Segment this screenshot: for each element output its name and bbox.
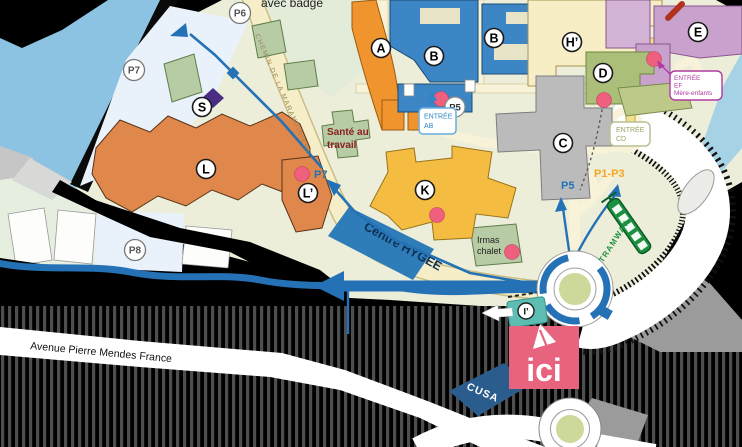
entrance-cd-line1: ENTRÉE bbox=[616, 125, 645, 134]
stairs-icon bbox=[465, 80, 475, 92]
poi-dot bbox=[430, 208, 445, 223]
route-p7-label: P7 bbox=[314, 169, 327, 181]
badge-h-prime: H’ bbox=[566, 36, 579, 50]
parking-p8: P8 bbox=[129, 246, 142, 257]
map-container: Centre HYGÉE Avenue Pierre Mendes France bbox=[0, 0, 742, 447]
badge-s: S bbox=[198, 101, 206, 115]
badge-d: D bbox=[598, 67, 607, 81]
parking-p6: P6 bbox=[234, 9, 247, 20]
badge-k: K bbox=[420, 184, 429, 198]
irmas-label-2: chalet bbox=[477, 246, 502, 256]
road-south-2 bbox=[598, 442, 655, 447]
entrance-ef-line1: ENTRÉE bbox=[674, 73, 701, 82]
courtyard bbox=[420, 8, 460, 24]
route-p1p3-label: P1-P3 bbox=[594, 168, 625, 180]
sante-label-1: Santé au bbox=[327, 127, 369, 138]
irmas-label-1: Irmas bbox=[477, 235, 500, 245]
white-building bbox=[54, 210, 96, 264]
badge-l: L bbox=[202, 163, 210, 177]
poi-dot bbox=[597, 93, 612, 108]
sante-label-2: travail bbox=[327, 140, 357, 151]
parking-p7: P7 bbox=[128, 66, 141, 77]
here-marker: ici bbox=[509, 324, 579, 389]
route-p5-label: P5 bbox=[561, 180, 574, 192]
entrance-ef-line3: Mère-enfants bbox=[674, 90, 713, 97]
badge-b2: B bbox=[489, 32, 498, 46]
entrance-cd: ENTRÉE CD bbox=[610, 122, 650, 146]
white-building bbox=[8, 208, 52, 266]
entrance-cd-line2: CD bbox=[616, 136, 626, 143]
stop-i-prime-label: I’ bbox=[523, 307, 528, 317]
campus-map-svg: Centre HYGÉE Avenue Pierre Mendes France bbox=[0, 0, 742, 447]
badge-c: C bbox=[558, 137, 567, 151]
building-e-west bbox=[606, 0, 650, 48]
poi-dot bbox=[505, 245, 520, 260]
badge-l-prime: L’ bbox=[303, 187, 313, 201]
badge-note: avec badge bbox=[261, 0, 323, 10]
badge-e: E bbox=[694, 26, 702, 40]
entrance-ab-line2: AB bbox=[424, 123, 434, 130]
stairs-icon bbox=[404, 84, 414, 96]
badge-b1: B bbox=[429, 50, 438, 64]
poi-dot bbox=[295, 167, 310, 182]
badge-a: A bbox=[376, 42, 385, 56]
entrance-ef-line2: EF bbox=[674, 83, 682, 90]
here-label: ici bbox=[526, 352, 562, 388]
entrance-ab-line1: ENTRÉE bbox=[424, 112, 453, 121]
